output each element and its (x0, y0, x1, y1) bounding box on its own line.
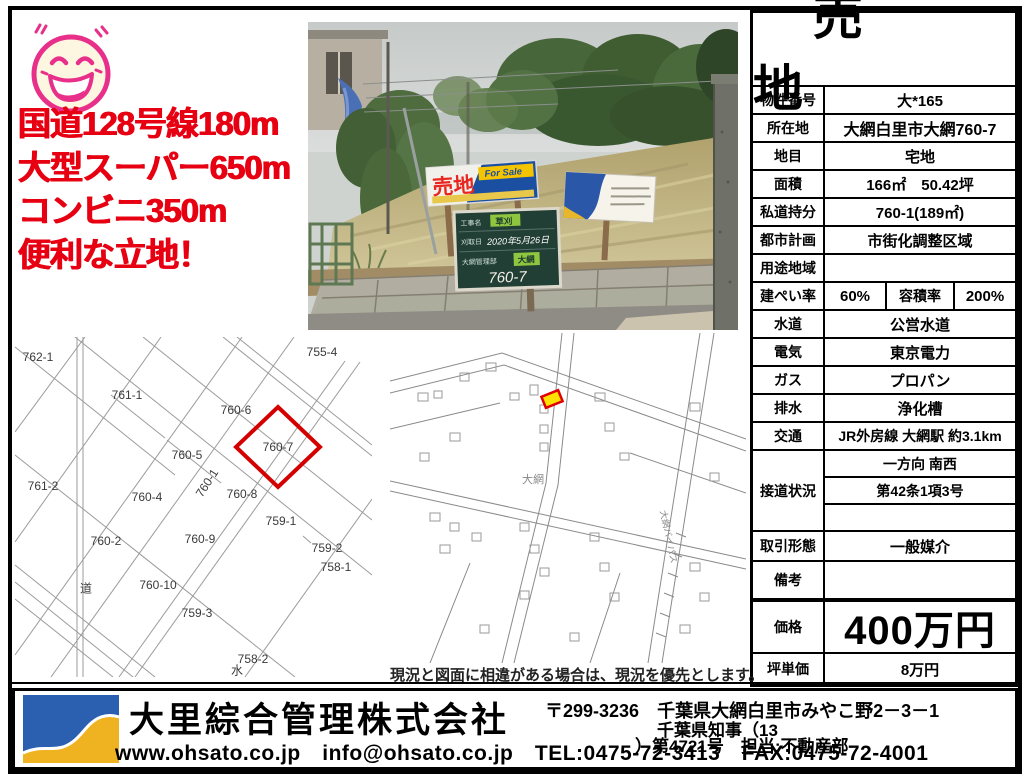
parcel-label-highlighted: 760-7 (263, 440, 294, 454)
row-transport: 交通 JR外房線 大網駅 約3.1km (753, 423, 1015, 451)
road-access-line (825, 505, 1015, 530)
row-transaction-type: 取引形態 一般媒介 (753, 532, 1015, 562)
row-label: 水道 (753, 311, 825, 337)
table-title: 売地 (753, 13, 1015, 87)
parcel-label: 760-2 (91, 534, 122, 548)
row-use-district: 用途地域 (753, 255, 1015, 283)
headline-line: 国道128号線180m (18, 102, 318, 146)
parcel-label: 758-1 (321, 560, 352, 574)
parcel-label: 759-3 (182, 606, 213, 620)
parcel-label: 760-4 (132, 490, 163, 504)
area-map: 大網 大網バイパス (390, 333, 746, 663)
parcel-label: 762-1 (23, 350, 54, 364)
row-remarks: 備考 (753, 562, 1015, 600)
row-value: 浄化槽 (825, 395, 1015, 421)
row-label: 接道状況 (753, 451, 825, 530)
row-gas: ガス プロパン (753, 367, 1015, 395)
row-value (825, 255, 1015, 281)
cadastral-lines (15, 337, 372, 677)
row-label: 物件番号 (753, 87, 825, 113)
row-unit-price: 坪単価 8万円 (753, 654, 1015, 684)
board-row3-value: 大網 (518, 254, 536, 265)
floor-area-ratio-value: 200% (955, 283, 1015, 309)
area-map-drawing: 大網 大網バイパス (390, 333, 746, 663)
parcel-label: 755-4 (307, 345, 338, 359)
row-value: 公営水道 (825, 311, 1015, 337)
row-land-category: 地目 宅地 (753, 143, 1015, 171)
row-private-road-share: 私道持分 760-1(189㎡) (753, 199, 1015, 227)
row-label: 面積 (753, 171, 825, 197)
footer: 大里綜合管理株式会社 www.ohsato.co.jp info@ohsato.… (12, 688, 1018, 770)
cadastral-map: 762-1 761-1 755-4 760-6 760-7 760-5 761-… (15, 337, 372, 677)
board-row1-value: 草刈 (495, 216, 512, 227)
row-label: 地目 (753, 143, 825, 169)
row-label: 建ぺい率 (753, 283, 825, 309)
parcel-label: 760-10 (139, 578, 176, 592)
footer-separator (12, 682, 1018, 684)
row-value: 宅地 (825, 143, 1015, 169)
row-road-access: 接道状況 一方向 南西 第42条1項3号 (753, 451, 1015, 532)
coverage-value: 60% (825, 283, 885, 309)
row-value: 東京電力 (825, 339, 1015, 365)
company-logo (23, 695, 119, 763)
highlight-parcel (541, 390, 562, 408)
row-label: 所在地 (753, 115, 825, 141)
parcel-label: 760-8 (227, 487, 258, 501)
row-label: 交通 (753, 423, 825, 449)
row-price: 価格 400万円 (753, 600, 1015, 654)
row-label: 私道持分 (753, 199, 825, 225)
company-name: 大里綜合管理株式会社 (129, 692, 509, 743)
row-coverage-ratio: 建ぺい率 60% 容積率 200% (753, 283, 1015, 311)
parcel-label: 760-9 (185, 532, 216, 546)
price-value: 400万円 (825, 602, 1015, 652)
row-area: 面積 166㎡ 50.42坪 (753, 171, 1015, 199)
parcel-label: 759-1 (266, 514, 297, 528)
board-number: 760-7 (488, 268, 528, 286)
row-location: 所在地 大網白里市大網760-7 (753, 115, 1015, 143)
site-photo: 売地 For Sale 工事名 草刈 (308, 22, 738, 330)
license-line-2: ）第4721号 担当:不動産部 (635, 732, 848, 757)
road-label: 道 (80, 580, 92, 597)
parcel-label: 761-1 (112, 388, 143, 402)
row-value: JR外房線 大網駅 約3.1km (825, 423, 1015, 449)
road-access-line: 第42条1項3号 (825, 478, 1015, 505)
headline: 国道128号線180m 大型スーパー650m コンビニ350m 便利な立地！ (18, 102, 318, 276)
row-value: 大網白里市大網760-7 (825, 115, 1015, 141)
row-value: 760-1(189㎡) (825, 199, 1015, 225)
headline-line: 大型スーパー650m (18, 146, 318, 190)
unit-price-value: 8万円 (825, 654, 1015, 684)
row-drainage: 排水 浄化槽 (753, 395, 1015, 423)
row-value: 大*165 (825, 87, 1015, 113)
row-value: プロパン (825, 367, 1015, 393)
row-label: 備考 (753, 562, 825, 598)
row-electricity: 電気 東京電力 (753, 339, 1015, 367)
row-property-number: 物件番号 大*165 (753, 87, 1015, 115)
parcel-label: 760-6 (221, 403, 252, 417)
floor-area-ratio-label: 容積率 (885, 283, 955, 309)
row-label: ガス (753, 367, 825, 393)
row-label: 価格 (753, 602, 825, 652)
bypass-road-label: 大網バイパス (658, 509, 680, 564)
flyer: 国道128号線180m 大型スーパー650m コンビニ350m 便利な立地！ (8, 6, 1022, 774)
row-label: 取引形態 (753, 532, 825, 560)
row-value: 市街化調整区域 (825, 227, 1015, 253)
headline-line: 便利な立地！ (18, 233, 318, 277)
row-label: 排水 (753, 395, 825, 421)
area-label: 大網 (522, 472, 544, 486)
property-table: 売地 物件番号 大*165 所在地 大網白里市大網760-7 地目 宅地 面積 … (750, 10, 1018, 687)
row-value (825, 562, 1015, 598)
parcel-label: 760-5 (172, 448, 203, 462)
row-value: 一般媒介 (825, 532, 1015, 560)
row-label: 都市計画 (753, 227, 825, 253)
headline-line: コンビニ350m (18, 189, 318, 233)
row-label: 電気 (753, 339, 825, 365)
row-city-planning: 都市計画 市街化調整区域 (753, 227, 1015, 255)
row-label: 用途地域 (753, 255, 825, 281)
parcel-label: 759-2 (312, 541, 343, 555)
row-value: 166㎡ 50.42坪 (825, 171, 1015, 197)
water-label: 水 (231, 662, 243, 679)
road-access-line: 一方向 南西 (825, 451, 1015, 478)
site-photo-scene: 売地 For Sale 工事名 草刈 (308, 22, 738, 330)
parcel-label: 761-2 (28, 479, 59, 493)
concrete-pillar (711, 74, 738, 330)
row-water: 水道 公営水道 (753, 311, 1015, 339)
